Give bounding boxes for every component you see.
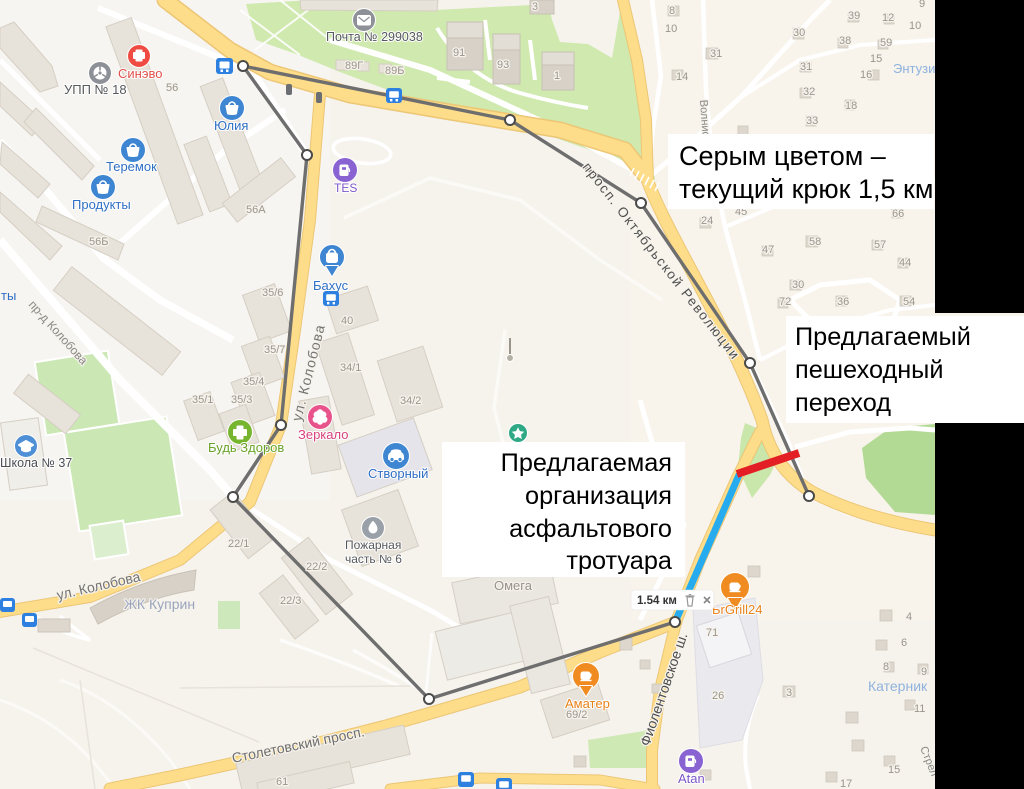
svg-text:35/7: 35/7 [264, 344, 285, 356]
svg-text:59: 59 [880, 37, 892, 49]
svg-text:38: 38 [839, 35, 851, 47]
svg-text:Створный: Створный [368, 466, 428, 481]
svg-text:39: 39 [848, 10, 860, 22]
svg-text:40: 40 [341, 315, 353, 327]
svg-text:30: 30 [793, 27, 805, 39]
svg-text:34/1: 34/1 [340, 362, 361, 374]
svg-text:35/1: 35/1 [192, 394, 213, 406]
svg-text:1.54 км: 1.54 км [637, 595, 677, 607]
svg-text:Будь Здоров: Будь Здоров [208, 440, 284, 455]
svg-text:58: 58 [809, 236, 821, 248]
svg-text:71: 71 [706, 627, 718, 639]
svg-text:36: 36 [837, 296, 849, 308]
svg-text:72: 72 [779, 296, 791, 308]
svg-text:11: 11 [914, 703, 925, 715]
svg-text:56А: 56А [246, 204, 266, 216]
svg-text:31: 31 [800, 61, 812, 73]
svg-text:32: 32 [803, 86, 815, 98]
svg-text:61: 61 [276, 776, 288, 788]
svg-text:Энтузи: Энтузи [893, 61, 935, 76]
svg-text:Продукты: Продукты [72, 197, 131, 212]
svg-text:9: 9 [921, 666, 927, 678]
svg-text:35/4: 35/4 [243, 376, 264, 388]
svg-text:Катерник: Катерник [868, 678, 928, 694]
svg-text:Юлия: Юлия [214, 118, 248, 133]
svg-text:44: 44 [899, 257, 911, 269]
svg-text:15: 15 [870, 53, 882, 65]
svg-text:Atan: Atan [678, 771, 705, 786]
svg-text:24: 24 [701, 215, 713, 227]
svg-text:12: 12 [882, 12, 894, 24]
svg-text:22/1: 22/1 [228, 538, 249, 550]
svg-text:Школа № 37: Школа № 37 [0, 456, 72, 470]
svg-text:89Г: 89Г [345, 60, 363, 72]
svg-text:34/2: 34/2 [400, 395, 421, 407]
svg-text:Омега: Омега [494, 578, 533, 593]
svg-text:10: 10 [909, 20, 921, 32]
svg-text:3: 3 [532, 1, 538, 13]
svg-text:54: 54 [903, 296, 915, 308]
svg-text:16: 16 [860, 69, 872, 81]
svg-text:89Б: 89Б [385, 65, 404, 77]
svg-text:ЖК Куприн: ЖК Куприн [124, 596, 195, 612]
svg-text:57: 57 [874, 239, 886, 251]
svg-text:22/2: 22/2 [306, 561, 327, 573]
svg-text:Зеркало: Зеркало [298, 427, 348, 442]
svg-text:УПП № 18: УПП № 18 [64, 82, 127, 97]
svg-text:8: 8 [883, 661, 889, 673]
svg-text:33: 33 [806, 115, 818, 127]
svg-text:часть № 6: часть № 6 [345, 552, 402, 566]
svg-text:47: 47 [762, 244, 774, 256]
svg-text:Синэво: Синэво [118, 66, 162, 81]
svg-text:3: 3 [786, 687, 792, 699]
svg-text:ЬrGrill24: ЬrGrill24 [712, 602, 762, 617]
svg-text:10: 10 [665, 23, 677, 35]
svg-text:22/3: 22/3 [280, 595, 301, 607]
svg-text:Аматер: Аматер [565, 696, 610, 711]
svg-text:35/6: 35/6 [262, 287, 283, 299]
svg-text:Почта № 299038: Почта № 299038 [326, 30, 423, 44]
svg-text:Теремок: Теремок [106, 159, 157, 174]
svg-text:18: 18 [845, 100, 857, 112]
svg-text:6: 6 [901, 637, 907, 649]
svg-text:17: 17 [840, 778, 852, 789]
svg-text:66: 66 [892, 208, 904, 220]
svg-text:91: 91 [453, 47, 465, 59]
svg-text:Бахус: Бахус [313, 278, 349, 293]
svg-text:4: 4 [906, 611, 912, 623]
svg-text:8: 8 [669, 5, 675, 17]
svg-text:15: 15 [888, 764, 900, 776]
svg-text:35/3: 35/3 [231, 394, 252, 406]
svg-text:1: 1 [554, 70, 560, 82]
svg-text:30: 30 [792, 279, 804, 291]
svg-text:ты: ты [1, 288, 16, 303]
svg-text:26: 26 [712, 690, 724, 702]
svg-text:9: 9 [919, 0, 925, 10]
svg-text:Пожарная: Пожарная [345, 538, 401, 552]
svg-text:56: 56 [166, 82, 178, 94]
svg-text:14: 14 [676, 71, 688, 83]
svg-text:93: 93 [497, 59, 509, 71]
svg-text:56Б: 56Б [89, 236, 108, 248]
svg-text:TES: TES [334, 181, 357, 195]
svg-text:31: 31 [710, 48, 722, 60]
